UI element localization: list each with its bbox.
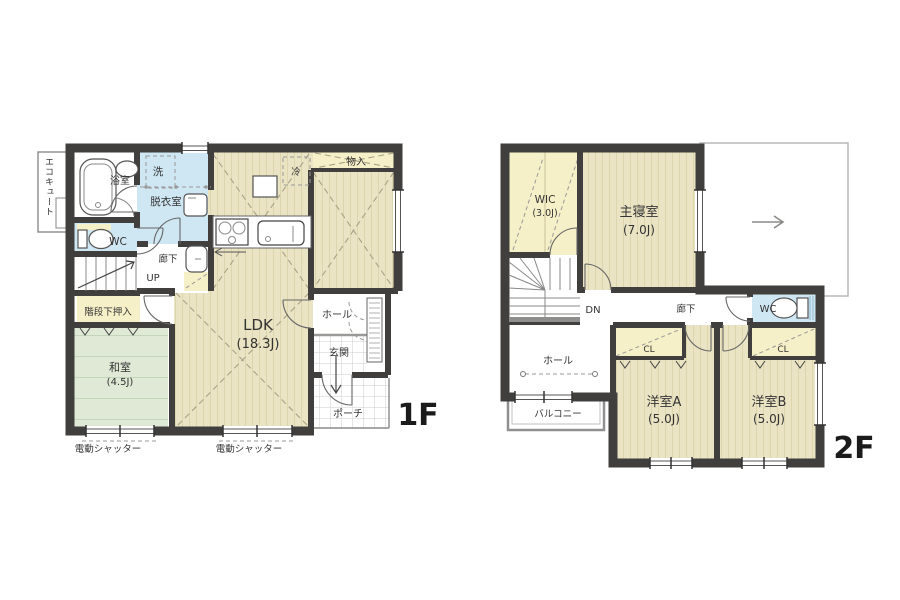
label-room-b-size: (5.0J): [753, 412, 785, 426]
floorplan-canvas: 浴室 洗 脱衣室 WC 廊下 UP 階段下押入 和室 (4.5J) LDK (1…: [0, 0, 900, 600]
label-ldk-size: (18.3J): [237, 337, 280, 352]
label-porch: ポーチ: [333, 408, 363, 420]
label-hall2: ホール: [543, 355, 573, 367]
label-fridge: 冷: [291, 166, 301, 178]
kitchen-cabinet-icon: [253, 176, 277, 197]
label-hall1: ホール: [322, 309, 352, 321]
label-wic: WIC: [535, 194, 556, 206]
label-under-stair: 階段下押入: [84, 306, 132, 318]
floor1-plan: 浴室 洗 脱衣室 WC 廊下 UP 階段下押入 和室 (4.5J) LDK (1…: [38, 142, 439, 455]
label-closet-b: CL: [777, 345, 788, 355]
label-laundry: 洗: [153, 166, 164, 178]
label-ecocute: エコキュート: [41, 157, 55, 229]
toilet-icon-1f: [78, 230, 113, 249]
label-up: UP: [146, 273, 159, 284]
wc-shelf: [77, 224, 111, 230]
label-room-a: 洋室A: [647, 394, 682, 410]
floor2-plan: WIC (3.0J) 主寝室 (7.0J) DN 廊下 WC ホール バルコニー…: [505, 143, 875, 469]
label-bath: 浴室: [110, 174, 130, 187]
label-master-size: (7.0J): [623, 223, 655, 237]
sink-icon: [258, 221, 304, 245]
label-corridor1: 廊下: [158, 253, 177, 265]
label-tatami: 和室: [109, 360, 131, 374]
label-tatami-size: (4.5J): [107, 377, 134, 388]
label-dressing: 脱衣室: [150, 195, 182, 208]
label-wc2: WC: [760, 304, 777, 315]
label-corridor2: 廊下: [676, 303, 695, 315]
floorplan-drawing: 浴室 洗 脱衣室 WC 廊下 UP 階段下押入 和室 (4.5J) LDK (1…: [0, 0, 900, 600]
master-bedroom-floor: [580, 152, 700, 290]
porch-floor: [313, 378, 389, 428]
label-room-b: 洋室B: [752, 394, 787, 410]
floor1-label: 1F: [397, 398, 438, 433]
corridor-cabinet-icon: [186, 246, 207, 272]
label-ldk: LDK: [243, 316, 274, 334]
label-wc1: WC: [109, 236, 127, 248]
washbasin-icon: [184, 194, 207, 216]
roof-outline: [700, 143, 848, 296]
label-master: 主寝室: [619, 204, 658, 220]
toilet-icon-2f: [771, 296, 813, 320]
label-room-a-size: (5.0J): [648, 412, 680, 426]
stove-icon: [216, 219, 248, 245]
label-balcony: バルコニー: [534, 409, 581, 420]
floor2-label: 2F: [833, 431, 874, 466]
label-dn: DN: [585, 305, 600, 316]
label-closet-a: CL: [643, 345, 654, 355]
label-wic-size: (3.0J): [532, 208, 557, 219]
label-entrance: 玄関: [329, 346, 349, 359]
label-storage: 物入: [346, 155, 366, 168]
label-shutter-a: 電動シャッター: [75, 444, 142, 455]
shoe-cabinet-icon: [367, 298, 382, 362]
label-shutter-b: 電動シャッター: [216, 444, 283, 455]
